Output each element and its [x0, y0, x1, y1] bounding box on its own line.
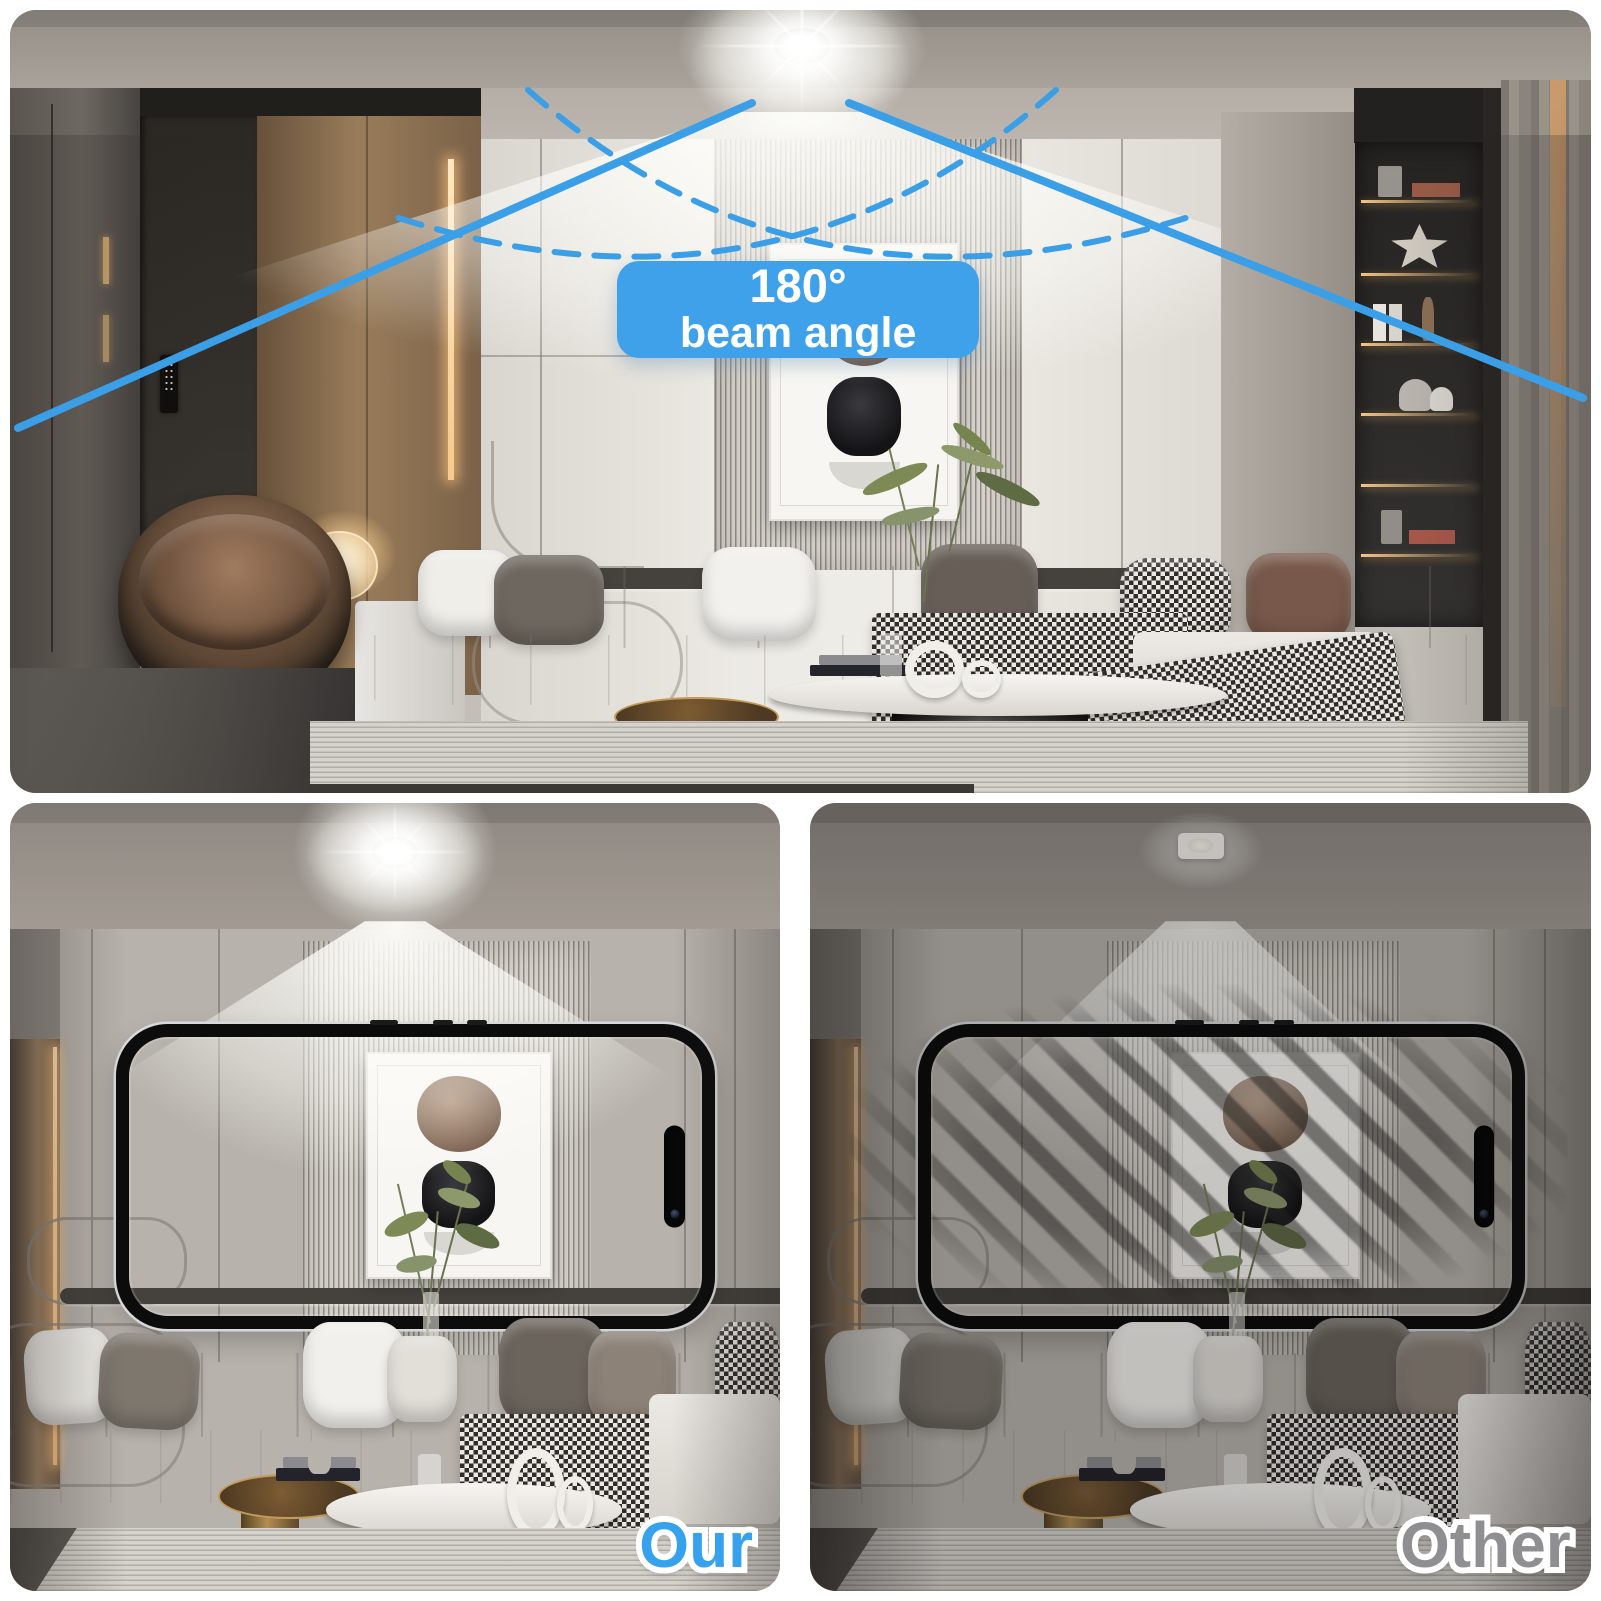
our-light-panel: Our Our	[10, 803, 780, 1591]
other-light-panel: Other Other	[810, 803, 1591, 1591]
our-label-text: Our	[639, 1509, 753, 1581]
phone-button	[433, 1020, 453, 1025]
decor-glass	[418, 1454, 441, 1497]
decor-figurine	[308, 1437, 331, 1475]
decor-ring	[1365, 1476, 1402, 1532]
badge-label-text: beam angle	[680, 311, 917, 356]
shadow-right	[672, 929, 780, 1591]
beam-angle-badge: 180° beam angle	[617, 261, 979, 358]
sofa-pillow-white	[387, 1336, 456, 1423]
sofa-pillow-white	[1193, 1336, 1263, 1423]
shadow-right	[1466, 929, 1591, 1591]
product-comparison-image: 180° beam angle	[0, 0, 1601, 1601]
other-label: Other Other	[1400, 1513, 1571, 1577]
phone-button	[1274, 1020, 1294, 1025]
phone-button	[1239, 1020, 1259, 1025]
other-label-text: Other	[1400, 1509, 1571, 1581]
decor-glass	[1224, 1454, 1247, 1497]
badge-degree-text: 180°	[750, 262, 847, 310]
decor-figurine	[1112, 1437, 1135, 1475]
our-label: Our Our	[639, 1513, 753, 1577]
beam-arc-dashed	[528, 90, 1195, 257]
decor-ring	[557, 1476, 594, 1532]
phone-button	[370, 1020, 399, 1025]
other-room-scene	[810, 803, 1591, 1591]
phone-button	[1175, 1020, 1204, 1025]
shadow-left	[10, 929, 126, 1591]
decor-ring	[1314, 1448, 1373, 1538]
phone-button	[467, 1020, 487, 1025]
shadow-left	[810, 929, 943, 1591]
our-room-scene	[10, 803, 780, 1591]
beam-angle-annotation	[10, 10, 1591, 793]
hero-panel: 180° beam angle	[10, 10, 1591, 793]
decor-ring	[507, 1448, 565, 1538]
